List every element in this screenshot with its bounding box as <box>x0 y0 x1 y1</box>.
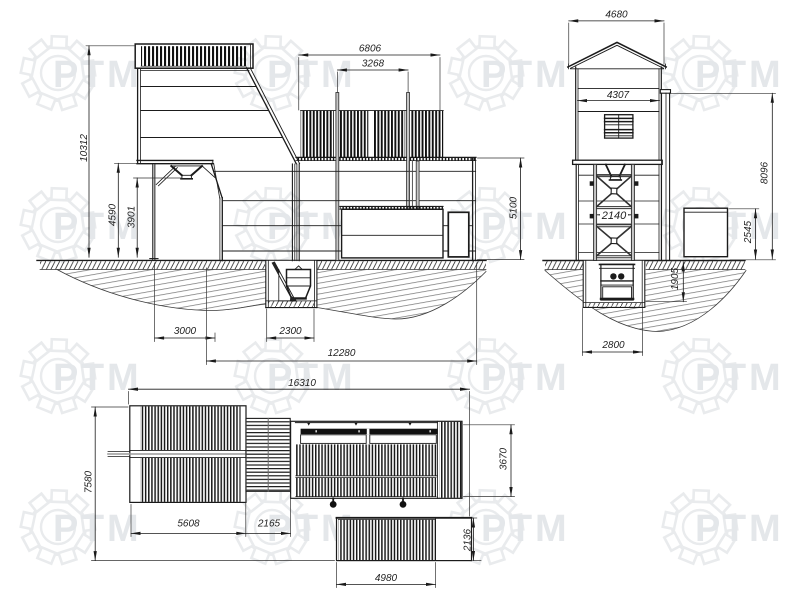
svg-text:3268: 3268 <box>362 59 385 70</box>
svg-text:2140: 2140 <box>601 210 627 222</box>
svg-text:4980: 4980 <box>375 573 398 584</box>
svg-text:4307: 4307 <box>607 90 630 101</box>
svg-text:РТМ: РТМ <box>481 206 570 248</box>
svg-text:3670: 3670 <box>499 447 510 470</box>
svg-text:3000: 3000 <box>174 326 197 337</box>
svg-text:4680: 4680 <box>605 10 628 21</box>
svg-text:6806: 6806 <box>359 44 382 55</box>
svg-text:РТМ: РТМ <box>267 54 356 96</box>
svg-text:2800: 2800 <box>601 340 625 351</box>
svg-text:РТМ: РТМ <box>53 54 142 96</box>
svg-text:РТМ: РТМ <box>695 508 784 550</box>
svg-text:7580: 7580 <box>84 470 95 493</box>
svg-text:16310: 16310 <box>288 378 316 389</box>
svg-text:РТМ: РТМ <box>481 357 570 399</box>
svg-text:РТМ: РТМ <box>695 54 784 96</box>
svg-text:8096: 8096 <box>760 161 771 184</box>
svg-text:РТМ: РТМ <box>695 357 784 399</box>
svg-text:3901: 3901 <box>126 206 137 228</box>
svg-text:4590: 4590 <box>108 203 119 226</box>
svg-text:1905: 1905 <box>670 267 681 290</box>
svg-text:2136: 2136 <box>463 528 474 552</box>
svg-text:2545: 2545 <box>743 220 754 244</box>
svg-text:РТМ: РТМ <box>53 508 142 550</box>
svg-text:2300: 2300 <box>278 326 302 337</box>
svg-text:РТМ: РТМ <box>481 54 570 96</box>
svg-text:5608: 5608 <box>177 519 200 530</box>
svg-text:12280: 12280 <box>328 348 356 359</box>
svg-text:2165: 2165 <box>257 519 281 530</box>
svg-text:10312: 10312 <box>79 134 90 162</box>
svg-text:РТМ: РТМ <box>481 508 570 550</box>
svg-text:5100: 5100 <box>509 196 520 219</box>
